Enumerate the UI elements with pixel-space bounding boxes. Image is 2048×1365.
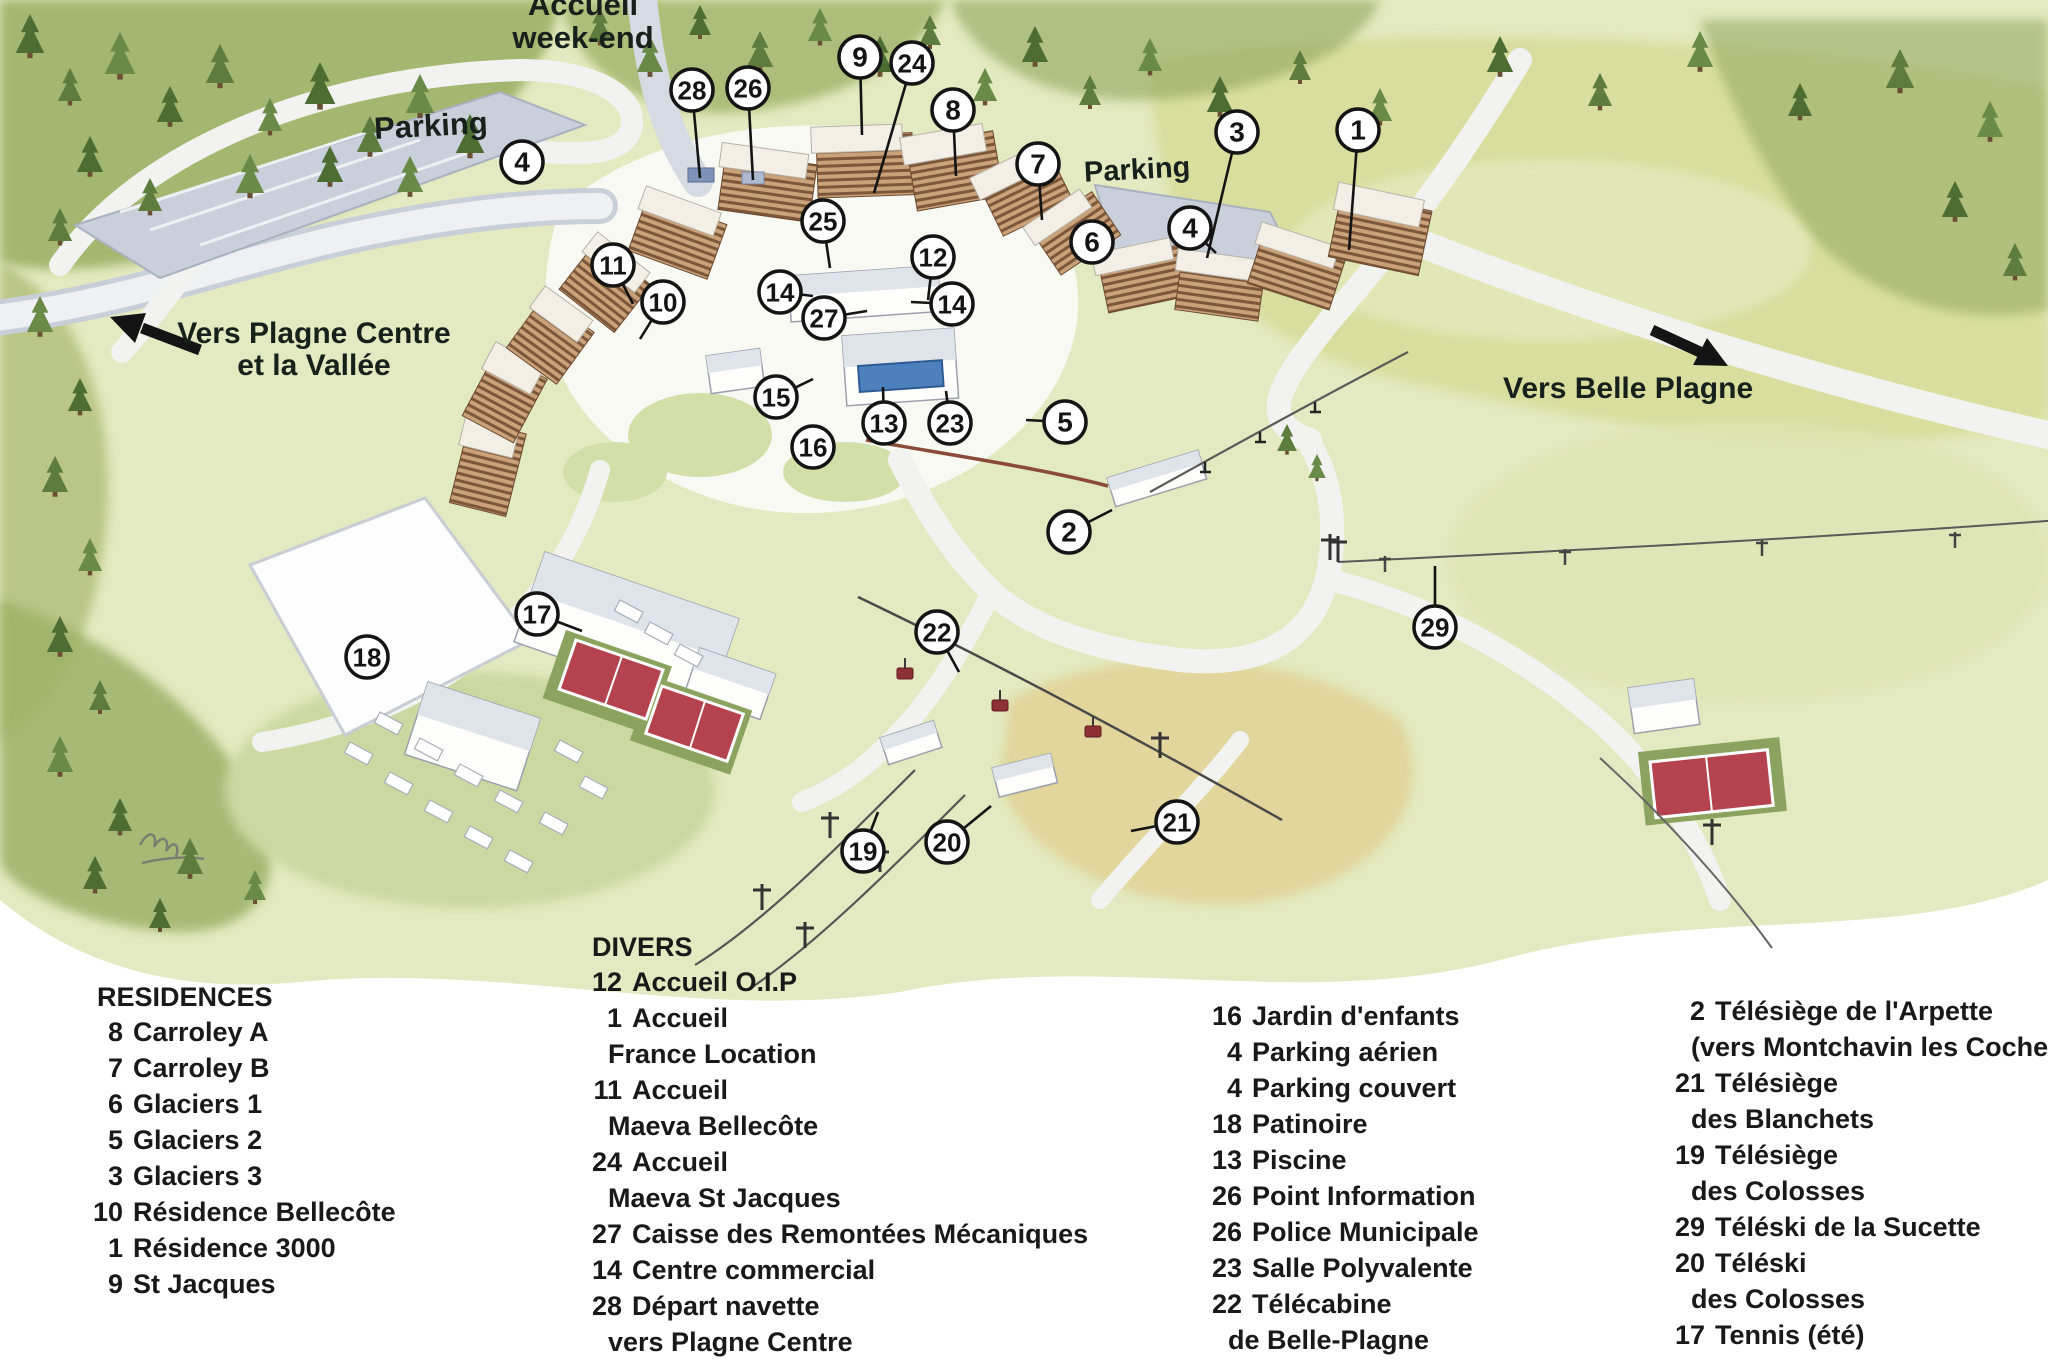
legend-item: France Location [582,1036,1088,1072]
swimming-pool [858,360,944,392]
legend-item: de Belle-Plagne [1202,1322,1479,1358]
svg-text:19: 19 [849,837,878,867]
svg-text:10: 10 [649,288,678,318]
map-marker: 8 [932,89,974,131]
map-marker: 21 [1156,801,1198,843]
svg-text:15: 15 [762,383,791,413]
map-marker: 1 [1337,109,1379,151]
svg-text:29: 29 [1421,613,1450,643]
legend-item: 8Carroley A [83,1014,396,1050]
legend-item: (vers Montchavin les Coches) [1665,1029,2048,1065]
map-marker: 4 [501,141,543,183]
svg-text:13: 13 [870,409,899,439]
svg-text:4: 4 [1182,213,1198,244]
legend-item: 12Accueil O.I.P [582,964,1088,1000]
map-marker: 29 [1414,606,1456,648]
map-marker: 3 [1216,111,1258,153]
map-marker: 12 [912,236,954,278]
svg-text:5: 5 [1057,407,1073,438]
legend-item: 27Caisse des Remontées Mécaniques [582,1216,1088,1252]
label-accueil-weekend: Accueilweek-end [498,0,668,55]
map-marker: 23 [929,402,971,444]
map-marker: 16 [792,426,834,468]
map-marker: 5 [1044,401,1086,443]
svg-text:7: 7 [1030,149,1046,180]
label-vers-belle-plagne: Vers Belle Plagne [1503,373,1753,405]
legend-item: 24Accueil [582,1144,1088,1180]
map-marker: 15 [755,376,797,418]
legend-item: 21Télésiège [1665,1065,2048,1101]
legend-residences-title: RESIDENCES [97,982,396,1012]
legend-column3-list: 16Jardin d'enfants4Parking aérien4Parkin… [1202,998,1479,1358]
legend-item: 23Salle Polyvalente [1202,1250,1479,1286]
map-marker: 20 [926,821,968,863]
legend-divers: DIVERS 12Accueil O.I.P1AccueilFrance Loc… [582,932,1088,1360]
legend-item: Maeva St Jacques [582,1180,1088,1216]
svg-text:3: 3 [1229,117,1245,148]
svg-text:27: 27 [810,304,839,334]
legend-column4: 2Télésiège de l'Arpette(vers Montchavin … [1665,993,2048,1353]
legend-item: 4Parking aérien [1202,1034,1479,1070]
legend-item: 1Résidence 3000 [83,1230,396,1266]
legend-item: Maeva Bellecôte [582,1108,1088,1144]
svg-text:17: 17 [523,600,552,630]
legend-column4-list: 2Télésiège de l'Arpette(vers Montchavin … [1665,993,2048,1353]
svg-text:26: 26 [734,74,763,104]
map-marker: 24 [891,42,933,84]
label-vers-plagne-centre: Vers Plagne Centreet la Vallée [158,318,470,383]
map-marker: 25 [802,200,844,242]
tennis-court-right [1638,737,1787,825]
map-marker: 9 [839,36,881,78]
legend-item: 5Glaciers 2 [83,1122,396,1158]
svg-text:23: 23 [936,409,965,439]
legend-item: des Colosses [1665,1281,2048,1317]
svg-text:16: 16 [799,433,828,463]
legend-item: 22Télécabine [1202,1286,1479,1322]
map-marker: 14 [931,283,973,325]
svg-text:12: 12 [919,243,948,273]
legend-item: 3Glaciers 3 [83,1158,396,1194]
map-marker: 2 [1048,511,1090,553]
svg-text:2: 2 [1061,517,1077,548]
legend-item: 10Résidence Bellecôte [83,1194,396,1230]
svg-text:18: 18 [353,643,382,673]
legend-item: 7Carroley B [83,1050,396,1086]
map-marker: 22 [916,611,958,653]
legend-item: 14Centre commercial [582,1252,1088,1288]
resort-map-page: 2826924873144625111012141427151323165217… [0,0,2048,1365]
legend-item: 19Télésiège [1665,1137,2048,1173]
svg-text:4: 4 [514,147,530,178]
legend-item: 18Patinoire [1202,1106,1479,1142]
legend-item: 16Jardin d'enfants [1202,998,1479,1034]
map-marker: 6 [1071,221,1113,263]
svg-text:21: 21 [1163,808,1192,838]
map-marker: 4 [1169,207,1211,249]
legend-item: 6Glaciers 1 [83,1086,396,1122]
svg-text:9: 9 [852,42,868,73]
svg-text:1: 1 [1350,115,1366,146]
map-marker: 14 [759,271,801,313]
map-marker: 17 [516,593,558,635]
legend-item: 17Tennis (été) [1665,1317,2048,1353]
legend-item: 20Téléski [1665,1245,2048,1281]
legend-item: 28Départ navette [582,1288,1088,1324]
legend-item: 1Accueil [582,1000,1088,1036]
legend-item: 11Accueil [582,1072,1088,1108]
legend-item: des Colosses [1665,1173,2048,1209]
map-marker: 18 [346,636,388,678]
legend-residences-list: 8Carroley A7Carroley B6Glaciers 15Glacie… [83,1014,396,1302]
map-marker: 10 [642,281,684,323]
svg-text:20: 20 [933,828,962,858]
legend-divers-list: 12Accueil O.I.P1AccueilFrance Location11… [582,964,1088,1360]
svg-text:6: 6 [1084,227,1100,258]
map-marker: 7 [1017,143,1059,185]
map-marker: 27 [803,297,845,339]
legend-residences: RESIDENCES 8Carroley A7Carroley B6Glacie… [83,982,396,1302]
legend-item: 26Point Information [1202,1178,1479,1214]
map-marker: 28 [671,69,713,111]
map-marker: 11 [592,244,634,286]
svg-text:8: 8 [945,95,961,126]
svg-text:24: 24 [898,49,927,79]
legend-item: 13Piscine [1202,1142,1479,1178]
svg-text:11: 11 [599,251,627,281]
map-marker: 26 [727,67,769,109]
legend-item: 9St Jacques [83,1266,396,1302]
svg-text:14: 14 [766,278,795,308]
legend-item: 4Parking couvert [1202,1070,1479,1106]
svg-text:22: 22 [923,618,952,648]
legend-item: des Blanchets [1665,1101,2048,1137]
svg-text:28: 28 [678,76,707,106]
map-marker: 13 [863,402,905,444]
legend-item: 29Téléski de la Sucette [1665,1209,2048,1245]
label-parking-right: Parking [1083,152,1191,189]
legend-divers-title: DIVERS [592,932,1088,962]
legend-item: 26Police Municipale [1202,1214,1479,1250]
legend-column3: 16Jardin d'enfants4Parking aérien4Parkin… [1202,998,1479,1358]
map-marker: 19 [842,830,884,872]
label-parking-left: Parking [373,106,488,145]
svg-text:25: 25 [809,207,838,237]
legend-item: vers Plagne Centre [582,1324,1088,1360]
svg-text:14: 14 [938,290,967,320]
legend-item: 2Télésiège de l'Arpette [1665,993,2048,1029]
